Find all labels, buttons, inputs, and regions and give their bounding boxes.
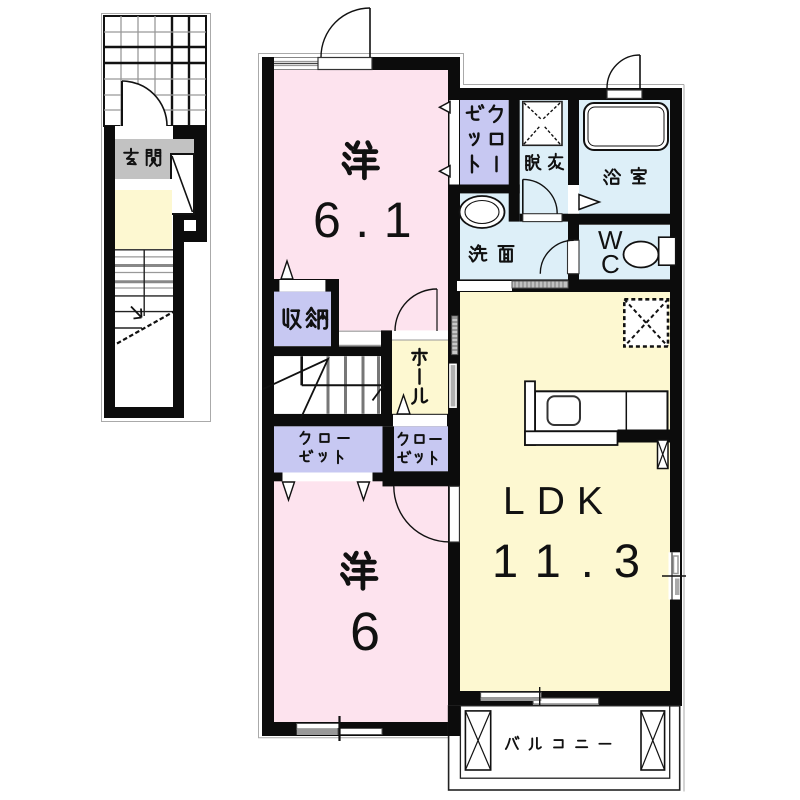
svg-text:LDK: LDK xyxy=(503,480,615,523)
svg-text:C: C xyxy=(601,249,620,279)
svg-text:6.1: 6.1 xyxy=(313,192,426,248)
svg-text:6: 6 xyxy=(350,602,380,662)
svg-text:11.3: 11.3 xyxy=(492,534,660,587)
